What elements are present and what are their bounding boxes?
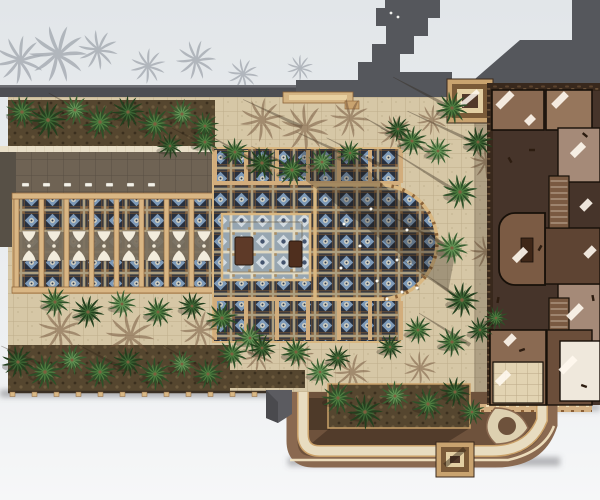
- corbel: [142, 392, 147, 397]
- ornate-pavilion-bottom: [436, 442, 474, 477]
- colonnade-beam: [114, 196, 119, 289]
- corner-planter-center: [498, 417, 516, 435]
- arcade-mullion-bottom: [337, 301, 341, 340]
- corbel: [98, 392, 103, 397]
- colonnade-beam: [14, 196, 19, 289]
- bird: [401, 291, 404, 294]
- bay-lamp: [27, 244, 31, 248]
- arcade-mullion-bottom: [399, 301, 403, 340]
- corbel: [230, 392, 235, 397]
- colonnade-beam: [189, 196, 194, 289]
- bay-lamp: [77, 244, 81, 248]
- corbel: [10, 392, 15, 397]
- bird: [370, 208, 373, 211]
- bay-lamp: [52, 244, 56, 248]
- bay-lamp: [152, 244, 156, 248]
- bird: [406, 229, 409, 232]
- arcade-mullion-top: [275, 150, 279, 183]
- corbel: [76, 392, 81, 397]
- corbel: [208, 392, 213, 397]
- bird: [396, 259, 399, 262]
- room-top-a: [492, 90, 544, 130]
- furniture-mark: [529, 149, 535, 151]
- bay-lamp: [202, 244, 206, 248]
- skylight-dot: [390, 12, 393, 15]
- bay-lamp: [102, 244, 106, 248]
- arcade-mullion-bottom: [306, 301, 310, 340]
- skylight-dot: [397, 16, 400, 19]
- central-corridor: [545, 228, 600, 284]
- bench: [22, 183, 29, 187]
- corbel: [54, 392, 59, 397]
- promenade-dark-band: [0, 152, 215, 196]
- colonnade-beam: [139, 196, 144, 289]
- bench: [85, 183, 92, 187]
- bird: [416, 287, 419, 290]
- planter-bottom-mid: [225, 370, 305, 388]
- court-table-right: [289, 241, 302, 267]
- arcade-mullion-bottom: [368, 301, 372, 340]
- bench: [43, 183, 50, 187]
- corbel: [186, 392, 191, 397]
- walkway-top: [0, 146, 215, 152]
- bay-lamp: [127, 244, 131, 248]
- bench: [148, 183, 155, 187]
- right-building: [487, 83, 600, 405]
- colonnade-beam: [64, 196, 69, 289]
- bird: [340, 267, 343, 270]
- arcade-mullion-bottom: [275, 301, 279, 340]
- colonnade-beam: [89, 196, 94, 289]
- staircase: [549, 176, 569, 228]
- colonnade-north-beam: [12, 193, 222, 199]
- arcade-mullion-top: [213, 150, 217, 183]
- bench: [127, 183, 134, 187]
- bay-lamp: [177, 244, 181, 248]
- site-plan-rendering: [0, 0, 600, 500]
- site-plan-canvas: [0, 0, 600, 500]
- court-table-left: [235, 237, 253, 265]
- corbel: [120, 392, 125, 397]
- corbel: [252, 392, 257, 397]
- colonnade-beam: [164, 196, 169, 289]
- colonnade: [12, 193, 222, 294]
- bird: [386, 298, 389, 301]
- bench: [106, 183, 113, 187]
- colonnade-beam: [39, 196, 44, 289]
- bench: [64, 183, 71, 187]
- corbel: [164, 392, 169, 397]
- room-top-b: [546, 90, 592, 130]
- corbel: [32, 392, 37, 397]
- bird: [343, 223, 346, 226]
- arcade-mullion-top: [399, 150, 403, 183]
- bird: [376, 280, 379, 283]
- room-east-upper: [558, 128, 600, 182]
- bird: [359, 245, 362, 248]
